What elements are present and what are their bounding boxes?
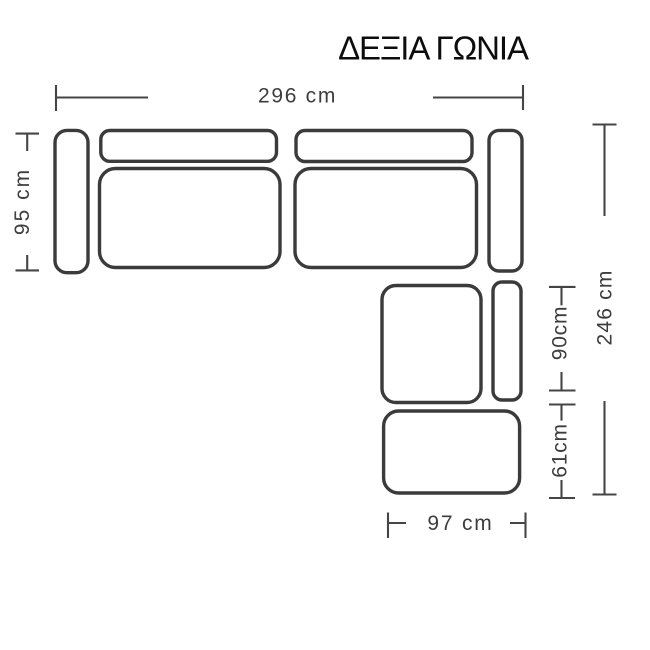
svg-text:97 cm: 97 cm [427,512,493,535]
svg-text:296 cm: 296 cm [258,85,337,108]
svg-text:90cm: 90cm [549,306,572,361]
svg-text:61cm: 61cm [549,423,572,478]
svg-text:ΔΕΞΙΑ ΓΩΝΙΑ: ΔΕΞΙΑ ΓΩΝΙΑ [338,30,529,67]
svg-text:95 cm: 95 cm [11,168,34,235]
svg-text:246 cm: 246 cm [594,269,617,345]
